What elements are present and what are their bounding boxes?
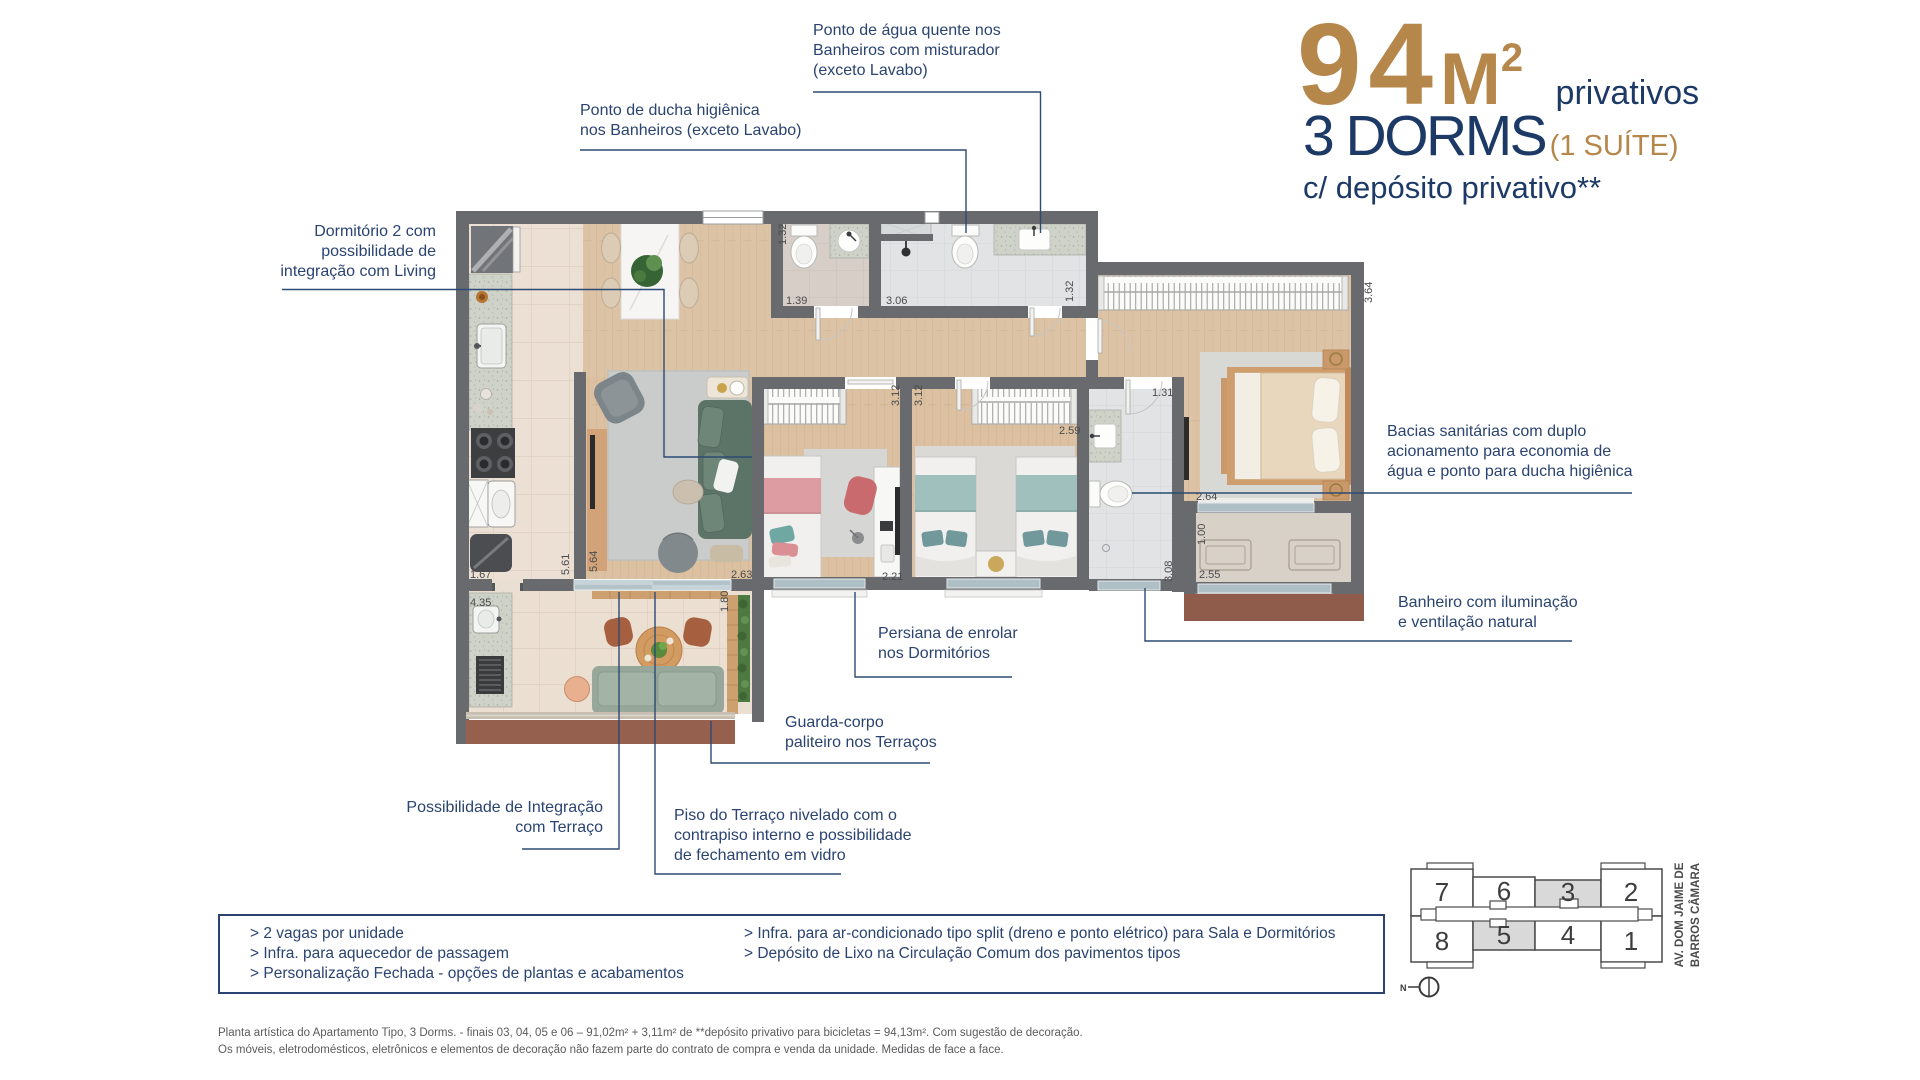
svg-text:4: 4 xyxy=(1561,920,1575,950)
svg-text:5.64: 5.64 xyxy=(588,551,600,572)
svg-text:1.67: 1.67 xyxy=(470,569,491,581)
svg-text:3: 3 xyxy=(1561,877,1575,907)
svg-text:1.80: 1.80 xyxy=(719,591,731,612)
svg-text:AV. DOM JAIME DE: AV. DOM JAIME DE xyxy=(1674,862,1686,967)
svg-text:6: 6 xyxy=(1497,876,1511,906)
svg-text:3.06: 3.06 xyxy=(886,295,907,307)
svg-text:4.35: 4.35 xyxy=(470,597,491,609)
svg-text:3.08: 3.08 xyxy=(1163,561,1175,582)
svg-text:N: N xyxy=(1400,983,1407,993)
svg-text:1.31: 1.31 xyxy=(1152,387,1173,399)
svg-text:BARROS CÂMARA: BARROS CÂMARA xyxy=(1689,863,1702,967)
svg-text:2: 2 xyxy=(1624,877,1638,907)
svg-text:2.55: 2.55 xyxy=(1199,569,1220,581)
svg-text:2.21: 2.21 xyxy=(882,571,903,583)
svg-text:8: 8 xyxy=(1435,926,1449,956)
svg-text:1: 1 xyxy=(1624,926,1638,956)
svg-text:1.32: 1.32 xyxy=(777,224,789,245)
svg-text:3.64: 3.64 xyxy=(1363,282,1375,303)
svg-text:3.12: 3.12 xyxy=(913,385,925,406)
svg-text:7: 7 xyxy=(1435,877,1449,907)
svg-text:5.61: 5.61 xyxy=(560,554,572,575)
svg-text:2.63: 2.63 xyxy=(731,569,752,581)
svg-text:1.00: 1.00 xyxy=(1196,524,1208,545)
svg-text:1.32: 1.32 xyxy=(1064,281,1076,302)
svg-text:2.59: 2.59 xyxy=(1059,425,1080,437)
svg-text:5: 5 xyxy=(1497,920,1511,950)
svg-text:1.39: 1.39 xyxy=(786,295,807,307)
svg-text:3.12: 3.12 xyxy=(890,385,902,406)
